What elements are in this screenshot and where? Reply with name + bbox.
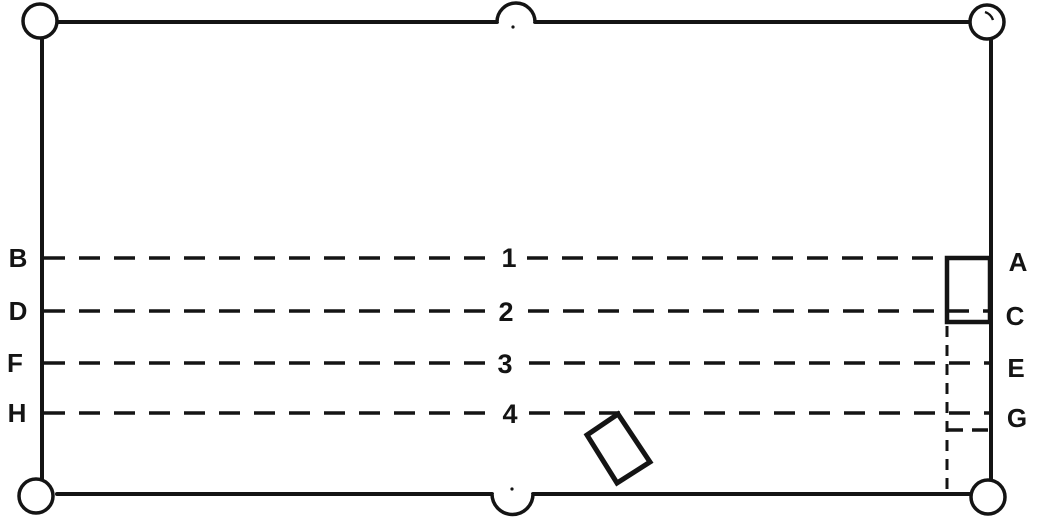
right-guides	[947, 326, 988, 492]
shot-lines	[44, 258, 989, 413]
line-numbers: 1 2 3 4	[497, 243, 517, 429]
billiard-table-diagram: B D F H A C E G 1 2 3 4	[0, 0, 1039, 518]
pocket-bottom-middle-dot	[510, 487, 513, 490]
pocket-top-middle-dot	[511, 25, 514, 28]
line-number-3: 3	[497, 349, 512, 379]
pocket-top-left	[23, 4, 57, 38]
line-number-2: 2	[498, 297, 513, 327]
label-right-4: G	[1007, 403, 1027, 433]
tilted-block	[587, 414, 650, 483]
label-right-1: A	[1009, 247, 1028, 277]
diagram-canvas: B D F H A C E G 1 2 3 4	[0, 0, 1039, 518]
label-right-2: C	[1006, 301, 1025, 331]
pocket-bottom-left	[19, 479, 53, 513]
label-left-1: B	[9, 243, 28, 273]
line-number-1: 1	[501, 243, 516, 273]
right-labels: A C E G	[1006, 247, 1028, 433]
label-right-3: E	[1007, 353, 1024, 383]
line-number-4: 4	[502, 399, 517, 429]
left-labels: B D F H	[7, 243, 27, 428]
pocket-top-right	[970, 5, 1004, 39]
label-left-4: H	[8, 398, 27, 428]
pocket-bottom-middle	[492, 494, 533, 514]
label-left-3: F	[7, 348, 23, 378]
pocket-bottom-right	[971, 480, 1005, 514]
label-left-2: D	[9, 296, 28, 326]
pocket-top-middle	[497, 3, 535, 22]
